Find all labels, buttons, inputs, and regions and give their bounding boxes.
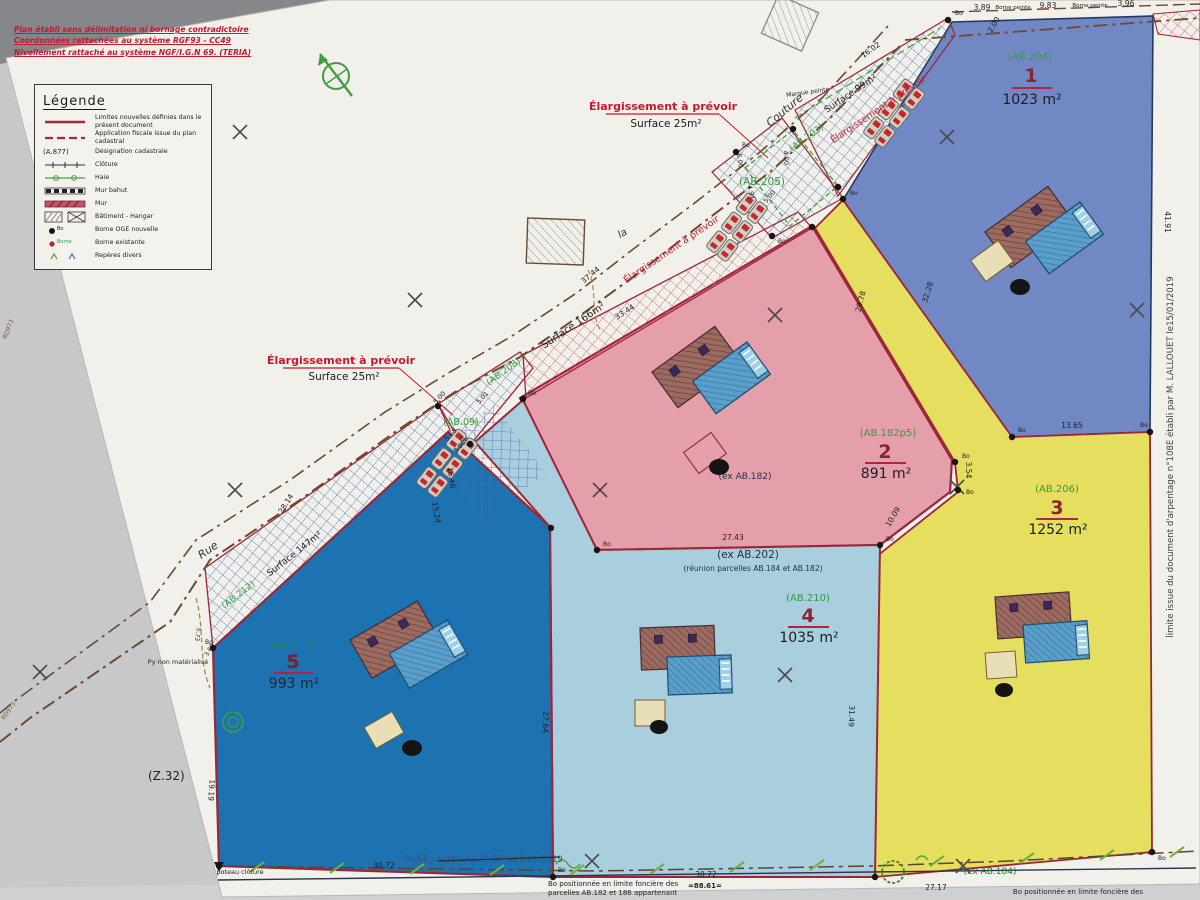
parcel-area: 891 m²: [861, 466, 911, 482]
header-note-line: Plan établi sans délimitation ni bornage…: [14, 24, 284, 35]
header-note-line: Coordonnées rattachées au système RGF93 …: [14, 35, 284, 46]
svg-text:Bo: Bo: [603, 541, 611, 548]
fiscal-limit-line-icon: [43, 132, 95, 144]
py-note: Py non matérialisé: [148, 658, 208, 666]
parcel-area: 993 m²: [269, 676, 319, 692]
svg-text:(ex AB.184): (ex AB.184): [964, 867, 1017, 877]
building-hangar-icon: [43, 211, 95, 223]
bo-note-left-2: parcelles AB.182 et 186 appartenant: [548, 889, 678, 897]
legend-item: Haie: [43, 172, 205, 184]
legend-item: Bâtiment - Hangar: [43, 211, 205, 223]
svg-text:Bo: Bo: [1018, 427, 1026, 434]
parcel-number: 1: [1024, 65, 1037, 87]
svg-text:30.72: 30.72: [695, 870, 717, 879]
photo-of-cadastral-plan: (AB.204) 1 1023 m² (AB.182p5) 2 891 m² (…: [0, 0, 1200, 900]
svg-text:Bo: Bo: [850, 190, 858, 197]
legend-item: Mur bahut: [43, 185, 205, 197]
parcel-ref: (AB.182p5): [860, 428, 917, 439]
svg-text:Borne: Borne: [57, 239, 72, 245]
parcel-ref: (AB.204): [1008, 52, 1052, 63]
svg-text:19.19: 19.19: [206, 779, 216, 801]
cadastral-ref-sample: (A.877): [43, 148, 69, 156]
svg-text:Bo: Bo: [778, 238, 786, 245]
new-borne-icon: Bo: [43, 224, 95, 236]
svg-text:41.91: 41.91: [1163, 211, 1172, 233]
svg-text:Bo: Bo: [558, 867, 566, 874]
svg-text:3.89: 3.89: [974, 3, 991, 12]
legend-item: Borne Borne existante: [43, 237, 205, 249]
parcel-ref: (AB.210): [786, 593, 830, 604]
svg-text:3.96: 3.96: [1118, 0, 1135, 8]
legend-item: Mur: [43, 198, 205, 210]
svg-text:27.43: 27.43: [722, 533, 744, 542]
parcel-ref: (AB.206): [1035, 484, 1079, 495]
svg-text:Surface 25m²: Surface 25m²: [630, 118, 701, 130]
existing-borne-icon: Borne: [43, 237, 95, 249]
legend-item: Repères divers: [43, 250, 205, 262]
parcel-area: 1023 m²: [1002, 92, 1061, 108]
parcel-number: 4: [801, 605, 814, 627]
wall-icon: [43, 198, 95, 210]
svg-text:Bo: Bo: [886, 536, 894, 543]
parcel-area: 1035 m²: [779, 630, 838, 646]
svg-text:Élargissement à prévoir: Élargissement à prévoir: [267, 354, 416, 367]
svg-text:Bo: Bo: [528, 390, 536, 397]
bo-note-left-1: Bo positionnée en limite foncière des: [548, 880, 678, 888]
parcel-ex-ref: (ex AB.182): [719, 472, 772, 482]
parcel-area: 1252 m²: [1028, 522, 1087, 538]
svg-text:4.00: 4.00: [781, 150, 790, 165]
poteau-note: poteau clôture: [216, 868, 263, 876]
svg-text:3.54: 3.54: [964, 462, 973, 479]
svg-text:27.64: 27.64: [541, 711, 551, 733]
parcel-number: 5: [286, 651, 299, 673]
legend-box: Légende Limites nouvelles définies dans …: [34, 84, 212, 270]
right-margin-note: limite issue du document d'arpentage n°1…: [1166, 271, 1176, 643]
svg-text:Bo: Bo: [955, 10, 963, 17]
svg-text:Bo: Bo: [57, 226, 64, 232]
svg-text:Bo: Bo: [962, 453, 970, 460]
svg-text:Bo: Bo: [1158, 855, 1166, 862]
borne-peinte-note: Borne peinte: [995, 5, 1031, 11]
svg-text:13.65: 13.65: [1061, 421, 1083, 430]
new-limit-line-icon: [43, 116, 95, 128]
svg-text:9.83: 9.83: [1040, 1, 1057, 10]
fence-line-icon: [43, 159, 95, 171]
altitude-note: =88.61=: [688, 882, 722, 890]
legend-title: Légende: [43, 94, 106, 110]
svg-text:27.17: 27.17: [925, 883, 947, 892]
low-wall-icon: [43, 185, 95, 197]
svg-text:(AB.09): (AB.09): [443, 417, 479, 428]
plan-header-notes: Plan établi sans délimitation ni bornage…: [14, 24, 284, 58]
svg-text:Élargissement à prévoir: Élargissement à prévoir: [589, 100, 738, 113]
legend-item: Clôture: [43, 159, 205, 171]
legend-item: Bo Borne OGE nouvelle: [43, 224, 205, 236]
legend-item: Application fiscale issue du plan cadast…: [43, 130, 205, 145]
legend-item: (A.877) Désignation cadastrale: [43, 146, 205, 158]
legend-item: Limites nouvelles définies dans le prése…: [43, 114, 205, 129]
svg-text:Surface 25m²: Surface 25m²: [308, 371, 379, 383]
parcel-ex-ref: (ex AB.202): [717, 549, 779, 561]
bo-note-right: Bo positionnée en limite foncière des: [1013, 888, 1143, 896]
header-note-line: Nivellement rattaché au système NGF/I.G.…: [14, 47, 284, 58]
svg-text:Bo: Bo: [966, 489, 974, 496]
hedge-line-icon: [43, 172, 95, 184]
parcel-number: 2: [878, 441, 891, 463]
svg-text:Bo: Bo: [742, 142, 750, 149]
borne-peinte-note: Borne peinte: [1072, 3, 1108, 9]
z32-label: (Z.32): [148, 769, 185, 783]
svg-text:31.49: 31.49: [847, 705, 857, 727]
svg-text:30.72: 30.72: [373, 861, 395, 870]
parcel-number: 3: [1050, 497, 1063, 519]
misc-marks-icon: [43, 250, 95, 262]
parcel-ex-detail: (réunion parcelles AB.184 et AB.182): [683, 564, 822, 573]
parcel-ref: (AB.211): [271, 640, 315, 651]
svg-text:Bo: Bo: [1140, 422, 1148, 429]
